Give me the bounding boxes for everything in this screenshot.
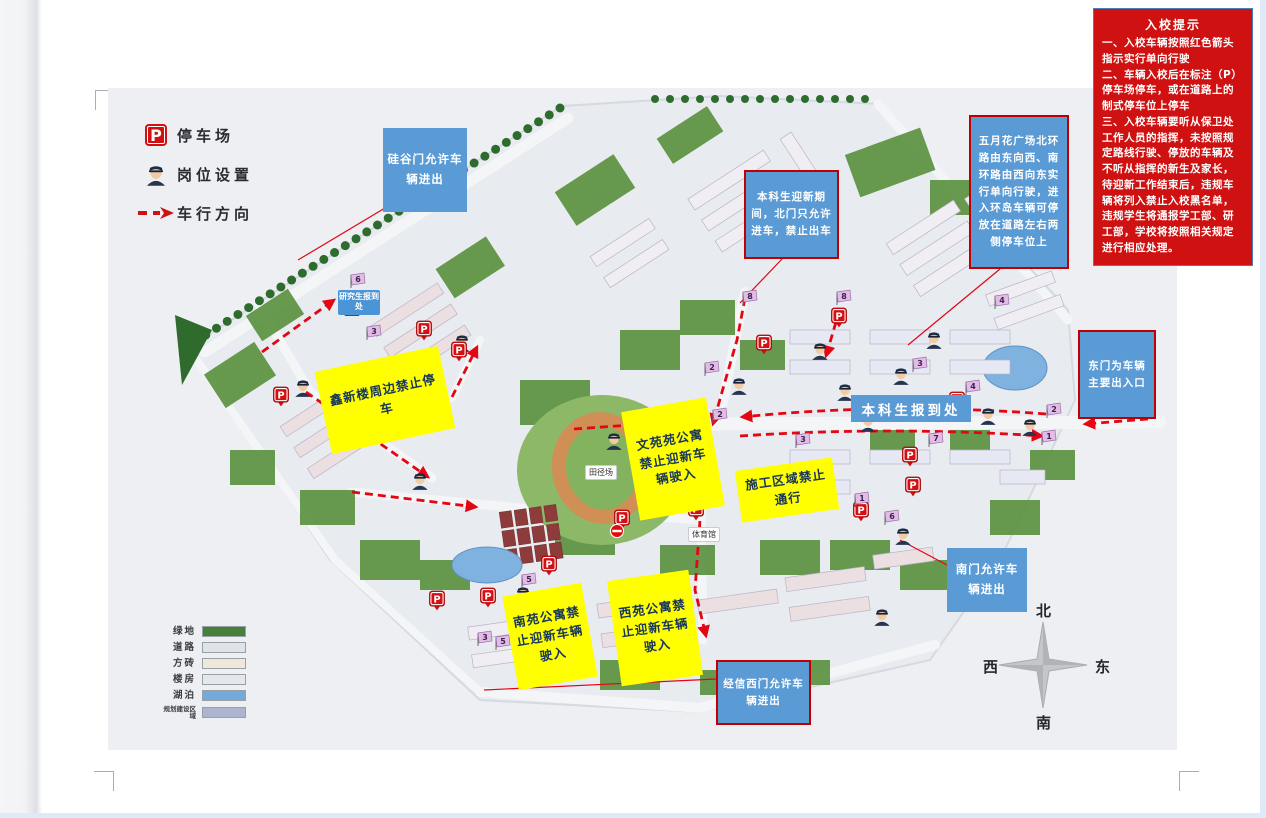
notice-line: 一、入校车辆按照红色箭头指示实行单向行驶 — [1102, 36, 1244, 68]
callout-east-gate[interactable]: 东门为车辆主要出入口 — [1078, 330, 1156, 419]
legend-row-parking: P 停车场 — [135, 122, 325, 148]
entry-notice-box[interactable]: 入校提示 一、入校车辆按照红色箭头指示实行单向行驶二、车辆入校后在标注（P）停车… — [1093, 8, 1253, 266]
lake-swatch — [202, 690, 246, 701]
legend-label: 车行方向 — [177, 203, 253, 224]
terrain-row: 规划建设区域 — [158, 706, 246, 720]
callout-north-gate[interactable]: 本科生迎新期间，北门只允许进车，禁止出车 — [744, 170, 839, 259]
compass-west: 西 — [983, 656, 998, 677]
terrain-row: 方砖 — [158, 658, 246, 669]
parking-icon: P — [135, 124, 177, 146]
terrain-legend: 绿地 道路 方砖 楼房 湖泊 规划建设区域 — [158, 626, 246, 725]
notice-title: 入校提示 — [1102, 16, 1244, 33]
callout-text: 鑫新楼周边禁止停车 — [322, 369, 447, 431]
terrain-row: 楼房 — [158, 674, 246, 685]
officer-icon — [135, 161, 177, 187]
callout-xiyuan-dorm[interactable]: 西苑公寓禁止迎新车辆驶入 — [607, 570, 703, 686]
compass-south: 南 — [1036, 712, 1051, 733]
notice-body: 一、入校车辆按照红色箭头指示实行单向行驶二、车辆入校后在标注（P）停车场停车，或… — [1102, 36, 1244, 257]
callout-guigu-gate[interactable]: 硅谷门允许车辆进出 — [383, 128, 467, 212]
notice-line: 二、车辆入校后在标注（P）停车场停车，或在道路上的制式停车位上停车 — [1102, 68, 1244, 115]
callout-text: 南门允许车辆进出 — [951, 560, 1023, 599]
label-gymnasium: 体育馆 — [688, 527, 720, 542]
compass-north: 北 — [1036, 600, 1051, 621]
callout-text: 五月花广场北环路由东向西、南环路由西向东实行单向行驶，进入环岛车辆可停放在道路左… — [975, 133, 1063, 251]
terrain-row: 绿地 — [158, 626, 246, 637]
planned-area-swatch — [202, 707, 246, 718]
callout-nanyuan-dorm[interactable]: 南苑公寓禁止迎新车辆驶入 — [502, 583, 597, 690]
label-track-field: 田径场 — [585, 465, 617, 480]
callout-text: 本科生报到处 — [862, 399, 961, 419]
legend-row-officer-post: 岗位设置 — [135, 161, 325, 187]
callout-text: 文苑苑公寓禁止迎新车辆驶入 — [629, 424, 718, 493]
green-area-swatch — [202, 626, 246, 637]
compass-rose: 北 南 西 东 — [975, 600, 1111, 730]
callout-south-gate[interactable]: 南门允许车辆进出 — [947, 548, 1027, 612]
dashed-arrow-icon — [135, 206, 177, 220]
road-swatch — [202, 642, 246, 653]
brick-swatch — [202, 658, 246, 669]
callout-text: 本科生迎新期间，北门只允许进车，禁止出车 — [750, 189, 833, 239]
legend-row-direction: 车行方向 — [135, 200, 325, 226]
callout-text: 硅谷门允许车辆进出 — [387, 150, 463, 189]
map-key-legend: P 停车场 岗位设置 车行方向 — [135, 122, 325, 239]
callout-text: 施工区域禁止通行 — [739, 465, 835, 515]
callout-text: 经信西门允许车辆进出 — [722, 676, 805, 710]
terrain-row: 湖泊 — [158, 690, 246, 701]
callout-text: 南苑公寓禁止迎新车辆驶入 — [509, 602, 592, 670]
callout-mayflower-plaza[interactable]: 五月花广场北环路由东向西、南环路由西向东实行单向行驶，进入环岛车辆可停放在道路左… — [969, 115, 1069, 269]
building-swatch — [202, 674, 246, 685]
callout-text: 西苑公寓禁止迎新车辆驶入 — [613, 595, 696, 661]
notice-line: 三、入校车辆要听从保卫处工作人员的指挥，未按照规定路线行驶、停放的车辆及不听从指… — [1102, 115, 1244, 257]
document-page: P 638228344213553167 入校提示 一、入校车辆按照红色箭头指示… — [0, 0, 1266, 818]
label-grad-registration: 研究生报到处 — [338, 290, 380, 315]
callout-text: 东门为车辆主要出入口 — [1084, 358, 1150, 392]
callout-jingxin-west-gate[interactable]: 经信西门允许车辆进出 — [716, 660, 811, 725]
callout-undergrad-registration[interactable]: 本科生报到处 — [851, 395, 971, 422]
legend-label: 停车场 — [177, 125, 234, 146]
terrain-row: 道路 — [158, 642, 246, 653]
legend-label: 岗位设置 — [177, 164, 253, 185]
compass-east: 东 — [1095, 656, 1110, 677]
